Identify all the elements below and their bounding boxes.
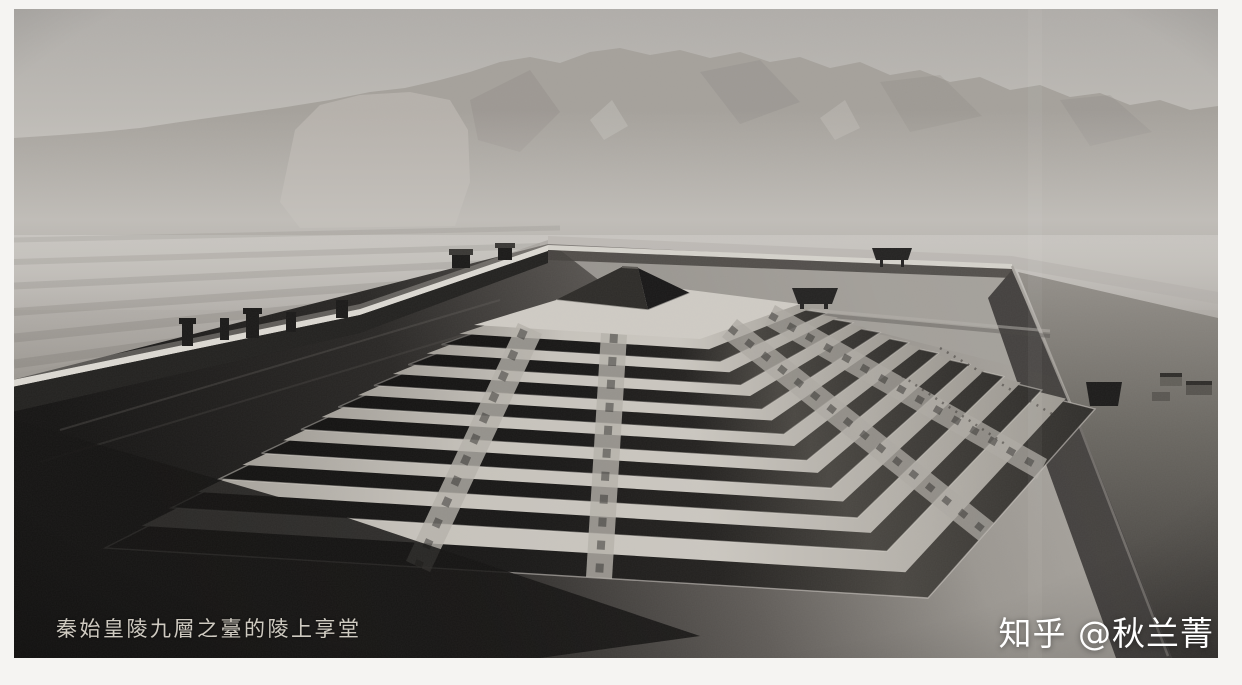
zhihu-watermark: 知乎 @秋兰菁 bbox=[999, 607, 1215, 655]
photo bbox=[14, 9, 1218, 658]
photo-vignette bbox=[14, 9, 1218, 658]
photo-caption: 秦始皇陵九層之臺的陵上享堂 bbox=[56, 617, 476, 642]
photo-scene bbox=[14, 9, 1218, 658]
